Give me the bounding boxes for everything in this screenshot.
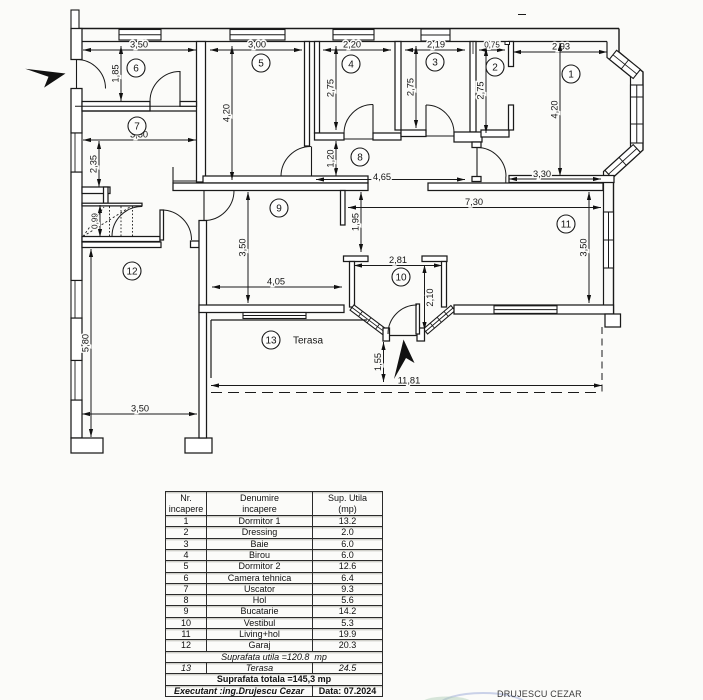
svg-text:11: 11: [561, 219, 572, 230]
svg-text:13: 13: [265, 335, 277, 346]
svg-text:9: 9: [276, 203, 282, 214]
svg-text:4,20: 4,20: [550, 100, 560, 118]
svg-text:Terasa: Terasa: [293, 336, 323, 347]
svg-text:2,75: 2,75: [476, 81, 486, 99]
svg-text:2,75: 2,75: [406, 78, 416, 96]
svg-text:0,99: 0,99: [91, 213, 100, 229]
svg-text:10: 10: [395, 272, 407, 283]
svg-text:11,81: 11,81: [398, 375, 421, 385]
svg-text:3,00: 3,00: [248, 40, 266, 50]
svg-text:2,19: 2,19: [427, 40, 445, 50]
svg-text:7: 7: [134, 121, 140, 132]
svg-text:5: 5: [258, 58, 264, 69]
svg-text:2,35: 2,35: [89, 155, 99, 173]
svg-text:1,20: 1,20: [326, 149, 336, 167]
svg-text:3,50: 3,50: [579, 238, 589, 256]
svg-text:4: 4: [348, 59, 354, 70]
svg-text:3,50: 3,50: [131, 404, 149, 414]
svg-text:2,75: 2,75: [326, 79, 336, 97]
svg-text:2,81: 2,81: [389, 255, 407, 265]
svg-text:3,50: 3,50: [238, 238, 248, 256]
svg-text:4,05: 4,05: [267, 277, 285, 287]
svg-text:1,85: 1,85: [111, 64, 121, 82]
svg-text:5,80: 5,80: [81, 334, 91, 352]
svg-text:1: 1: [568, 69, 574, 80]
svg-text:7,30: 7,30: [465, 197, 483, 207]
svg-text:2,10: 2,10: [425, 288, 435, 306]
svg-text:3,50: 3,50: [130, 40, 148, 50]
svg-text:1,55: 1,55: [373, 353, 383, 371]
svg-text:6: 6: [133, 63, 139, 74]
svg-text:0,75: 0,75: [484, 40, 500, 49]
svg-text:4,20: 4,20: [222, 104, 232, 122]
svg-text:3,30: 3,30: [533, 169, 551, 179]
svg-text:2: 2: [492, 62, 498, 73]
svg-text:12: 12: [126, 266, 138, 277]
svg-text:1,95: 1,95: [351, 213, 361, 231]
svg-text:4,65: 4,65: [373, 172, 391, 182]
svg-text:8: 8: [357, 152, 363, 163]
svg-text:2,20: 2,20: [343, 40, 361, 50]
svg-text:3: 3: [432, 57, 438, 68]
